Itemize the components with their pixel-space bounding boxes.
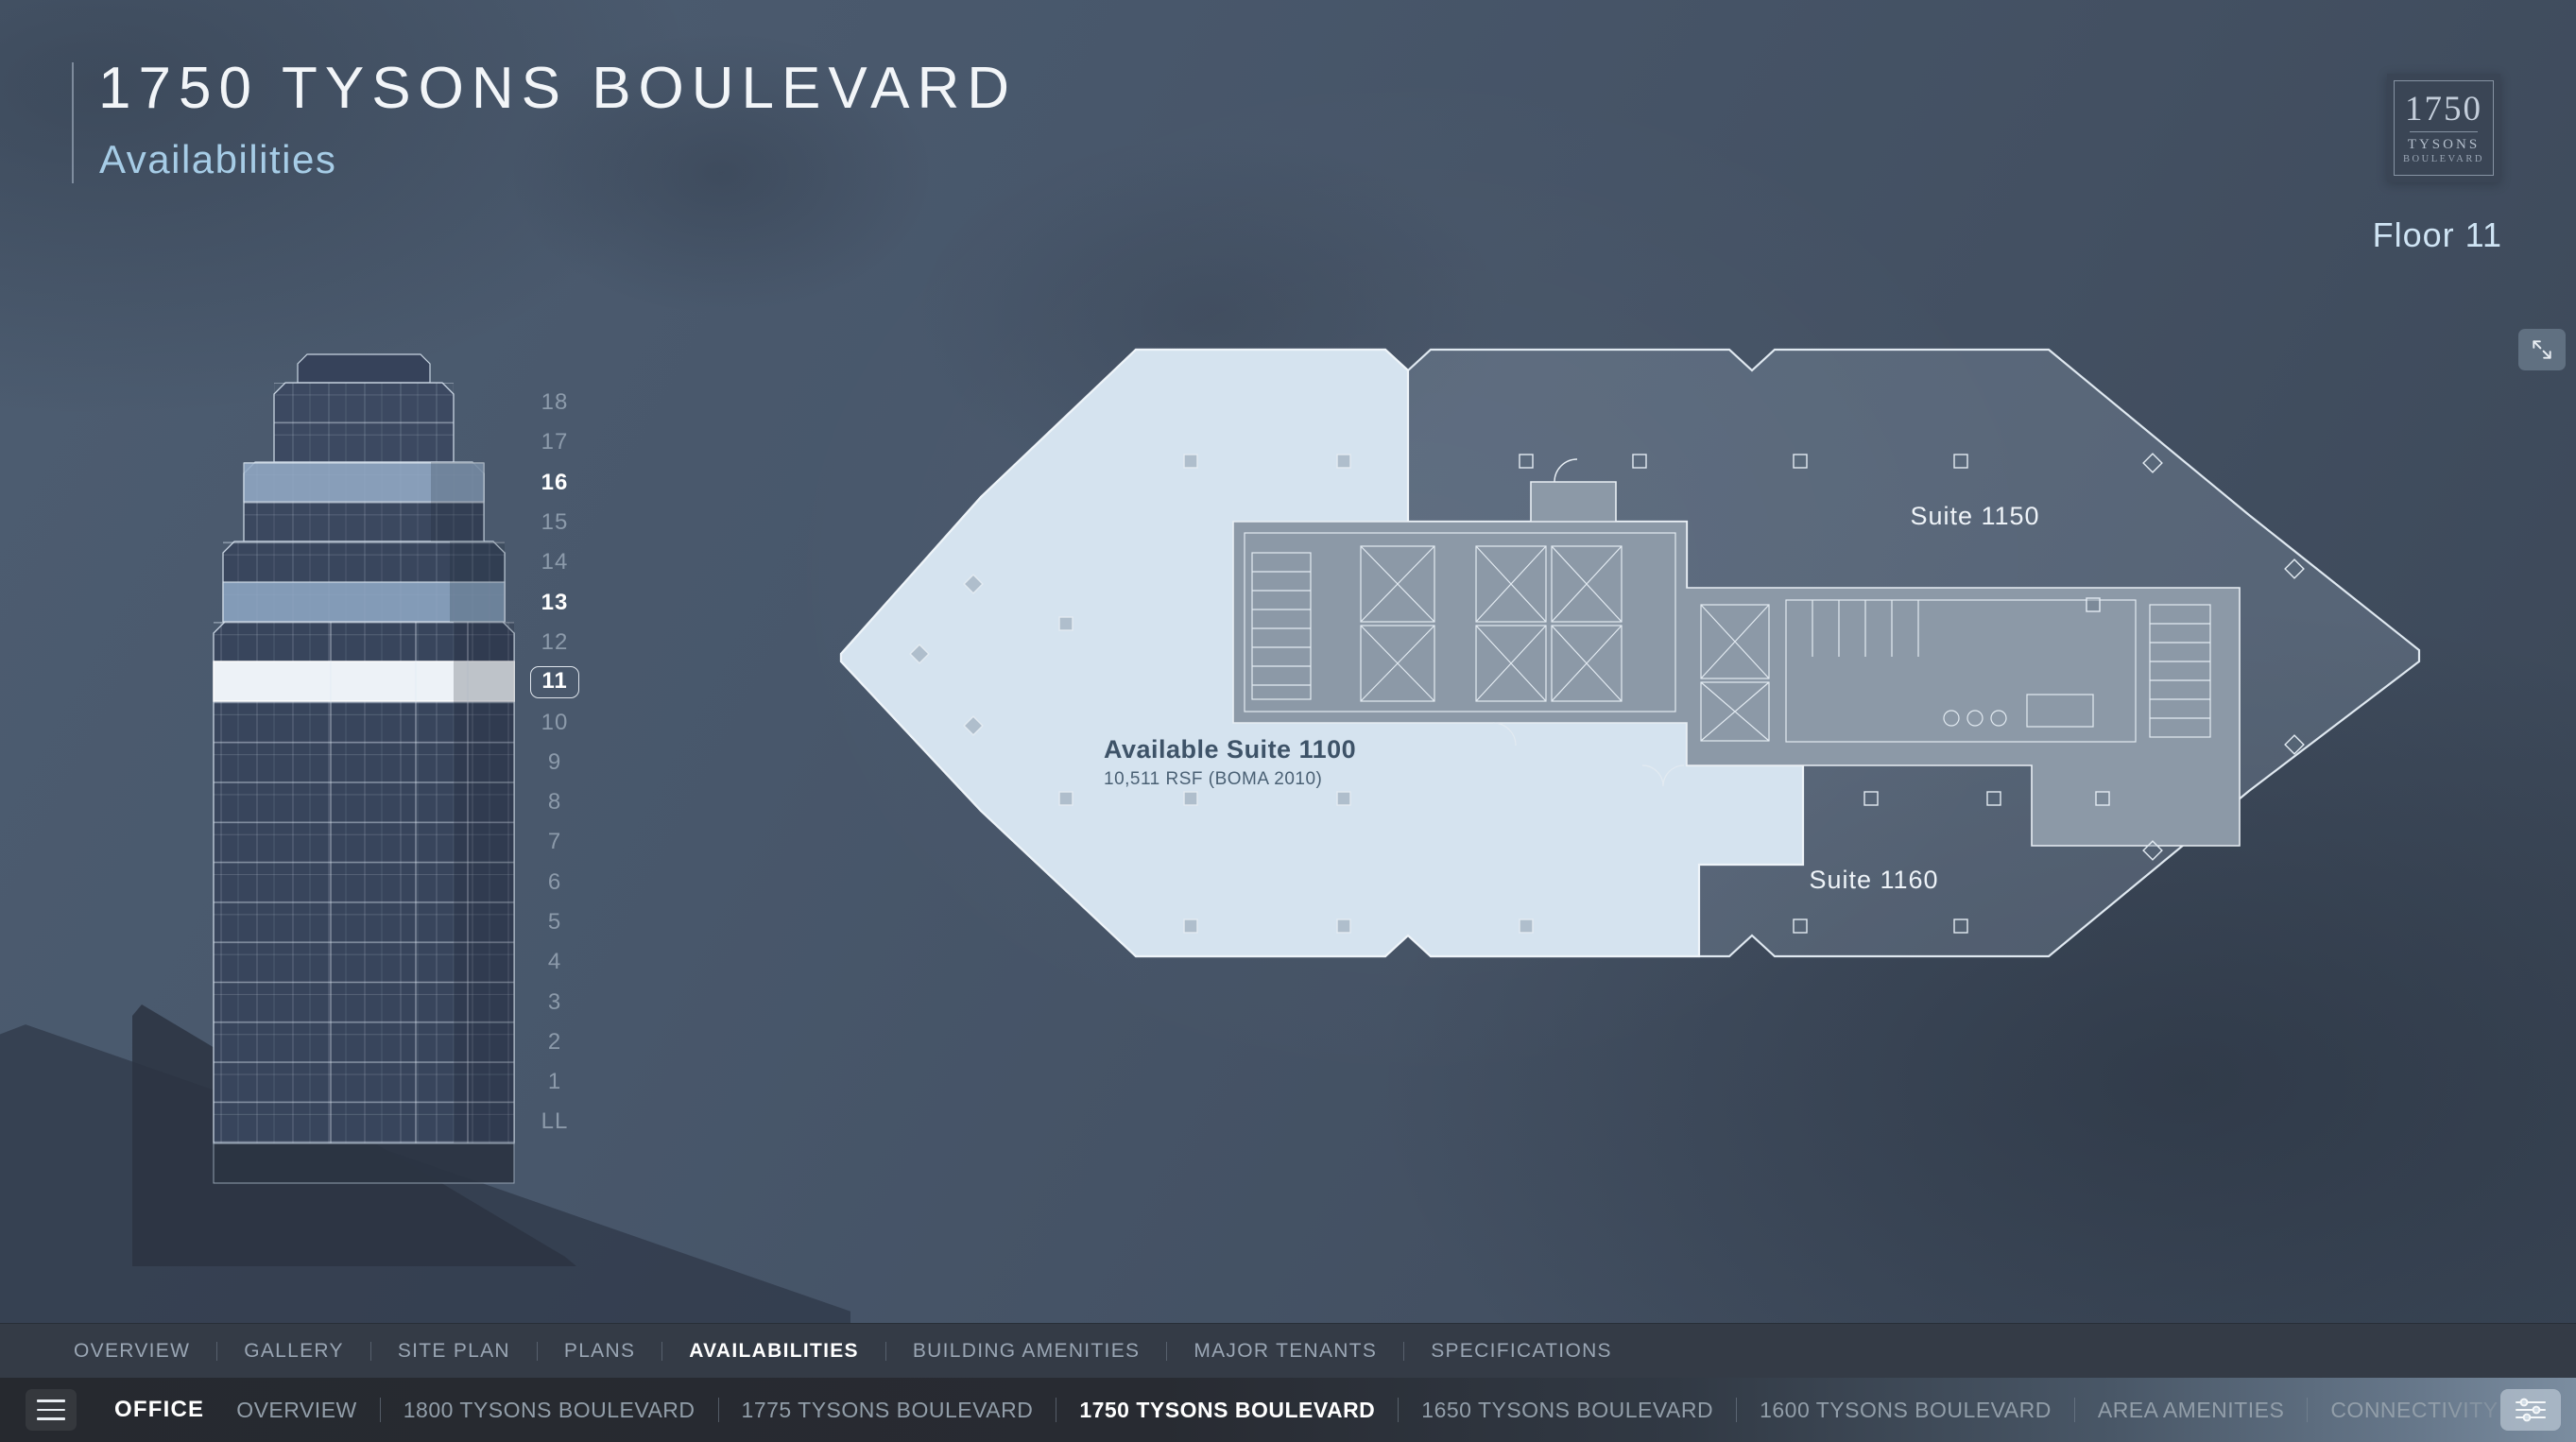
floor-rail-item[interactable]: 10 bbox=[518, 702, 592, 742]
floor-indicator: Floor 11 bbox=[2221, 215, 2502, 255]
floor-rail-item[interactable]: 15 bbox=[518, 503, 592, 542]
floor-rail-item[interactable]: 3 bbox=[518, 982, 592, 1021]
title-rule bbox=[72, 62, 74, 183]
bottom-nav-area-amenities[interactable]: AREA AMENITIES bbox=[2075, 1398, 2307, 1423]
bottom-nav-1750-tysons[interactable]: 1750 TYSONS BOULEVARD bbox=[1056, 1398, 1398, 1423]
floor-rail-item[interactable]: 2 bbox=[518, 1022, 592, 1062]
availabilities-page: 1750 TYSONS BOULEVARD Availabilities 175… bbox=[0, 0, 2576, 1442]
floor-rail-item[interactable]: 7 bbox=[518, 822, 592, 862]
building-logo: 1750 TYSONS BOULEVARD bbox=[2387, 74, 2500, 182]
expand-icon bbox=[2528, 337, 2556, 362]
tab-specifications[interactable]: SPECIFICATIONS bbox=[1404, 1340, 1639, 1363]
suite-1160-label: Suite 1160 bbox=[1809, 866, 1938, 894]
tab-building-amenities[interactable]: BUILDING AMENITIES bbox=[886, 1340, 1166, 1363]
floor-rail-item[interactable]: 8 bbox=[518, 782, 592, 822]
floor-rail-item-available[interactable]: 16 bbox=[518, 463, 592, 503]
suite-1150-label: Suite 1150 bbox=[1910, 502, 2039, 530]
tab-site-plan[interactable]: SITE PLAN bbox=[371, 1340, 537, 1363]
logo-line3: BOULEVARD bbox=[2403, 153, 2484, 166]
floor-rail-item[interactable]: 4 bbox=[518, 942, 592, 982]
hamburger-icon bbox=[37, 1399, 65, 1402]
floor-rail-item[interactable]: 1 bbox=[518, 1062, 592, 1102]
bottom-nav-overview[interactable]: OVERVIEW bbox=[214, 1398, 380, 1423]
logo-number: 1750 bbox=[2405, 92, 2482, 127]
tab-overview[interactable]: OVERVIEW bbox=[47, 1340, 216, 1363]
page-title: 1750 TYSONS BOULEVARD bbox=[98, 55, 1017, 122]
bottom-nav-1600-tysons[interactable]: 1600 TYSONS BOULEVARD bbox=[1737, 1398, 2074, 1423]
logo-line2: TYSONS bbox=[2408, 137, 2480, 153]
bottom-nav-1650-tysons[interactable]: 1650 TYSONS BOULEVARD bbox=[1399, 1398, 1736, 1423]
suite-1100-label: Available Suite 1100 bbox=[1104, 735, 1356, 764]
page-subtitle: Availabilities bbox=[99, 137, 336, 182]
floor-rail-item[interactable]: 14 bbox=[518, 542, 592, 582]
floor-rail-item[interactable]: 5 bbox=[518, 902, 592, 942]
tab-plans[interactable]: PLANS bbox=[538, 1340, 661, 1363]
bottom-nav-1800-tysons[interactable]: 1800 TYSONS BOULEVARD bbox=[381, 1398, 718, 1423]
suite-1100-size: 10,511 RSF (BOMA 2010) bbox=[1104, 769, 1322, 789]
floor-selector: 18 17 16 15 14 13 12 11 10 9 8 7 6 5 4 3… bbox=[518, 383, 592, 1142]
logo-divider bbox=[2410, 131, 2478, 132]
bottom-bar: OFFICE OVERVIEW 1800 TYSONS BOULEVARD 17… bbox=[0, 1378, 2576, 1442]
section-nav: OVERVIEW GALLERY SITE PLAN PLANS AVAILAB… bbox=[0, 1323, 2576, 1379]
tab-major-tenants[interactable]: MAJOR TENANTS bbox=[1167, 1340, 1403, 1363]
floor-rail-item[interactable]: LL bbox=[518, 1102, 592, 1142]
floor-rail-item[interactable]: 9 bbox=[518, 743, 592, 782]
expand-button[interactable] bbox=[2518, 329, 2566, 370]
floor-rail-item[interactable]: 17 bbox=[518, 422, 592, 462]
floor-rail-item[interactable]: 6 bbox=[518, 863, 592, 902]
floor-rail-item[interactable]: 18 bbox=[518, 383, 592, 422]
sliders-icon bbox=[2512, 1396, 2550, 1424]
tab-availabilities[interactable]: AVAILABILITIES bbox=[662, 1340, 885, 1363]
filter-button[interactable] bbox=[2500, 1389, 2561, 1431]
building-illustration bbox=[132, 312, 576, 1266]
floor-rail-item-available[interactable]: 13 bbox=[518, 582, 592, 622]
floor-plan: Suite 1150 Available Suite 1100 10,511 R… bbox=[832, 321, 2429, 983]
floor-rail-item-selected[interactable]: 11 bbox=[518, 662, 592, 702]
tab-gallery[interactable]: GALLERY bbox=[217, 1340, 370, 1363]
bottom-nav-1775-tysons[interactable]: 1775 TYSONS BOULEVARD bbox=[719, 1398, 1056, 1423]
building-logo-frame: 1750 TYSONS BOULEVARD bbox=[2394, 80, 2494, 176]
menu-button[interactable] bbox=[26, 1389, 77, 1431]
category-office[interactable]: OFFICE bbox=[105, 1397, 214, 1423]
floor-rail-item[interactable]: 12 bbox=[518, 623, 592, 662]
